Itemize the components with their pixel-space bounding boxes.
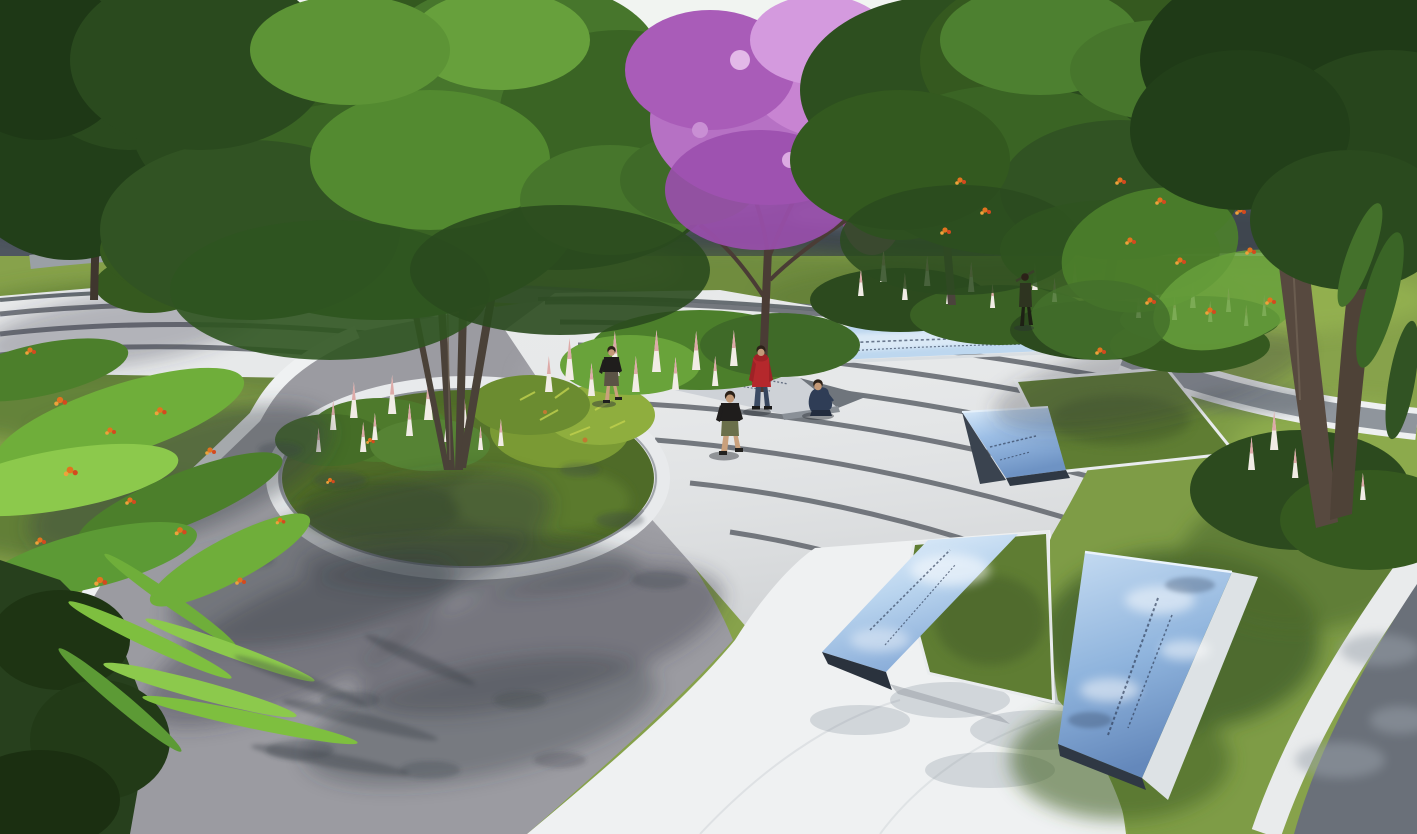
rendering-canvas [0, 0, 1417, 834]
